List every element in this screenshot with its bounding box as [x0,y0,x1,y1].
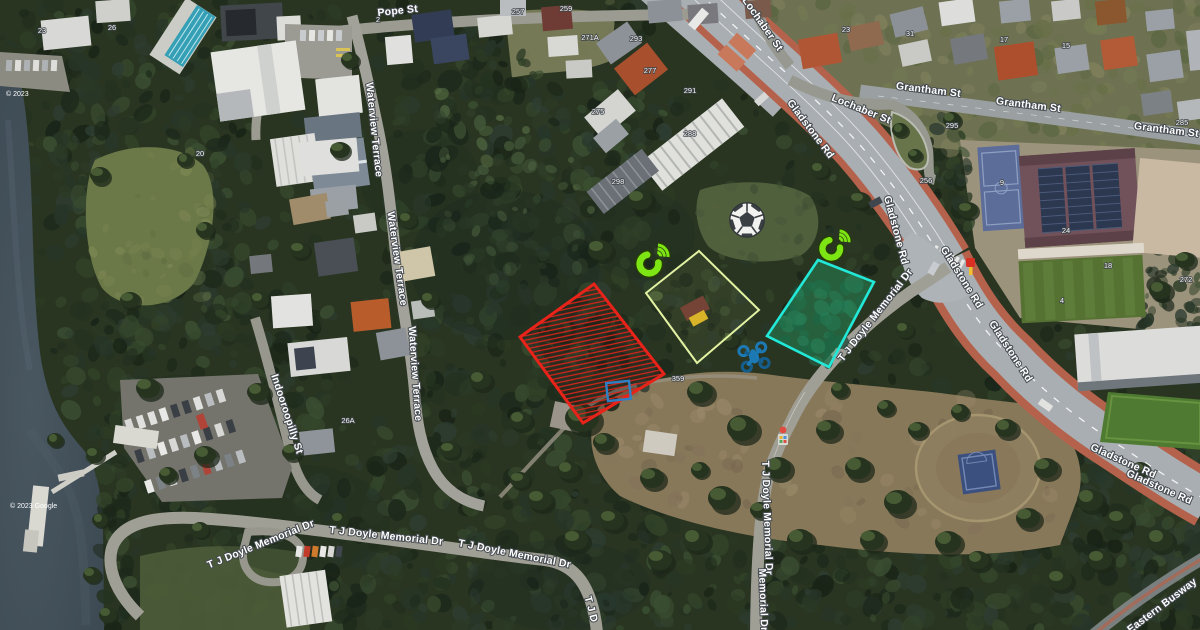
svg-text:17: 17 [1000,35,1008,44]
svg-text:© 2023: © 2023 [6,90,29,98]
svg-text:26A: 26A [341,416,354,425]
svg-text:256: 256 [920,176,933,185]
svg-text:259: 259 [560,4,573,13]
svg-text:291: 291 [684,86,697,95]
svg-text:23: 23 [842,25,850,34]
svg-text:26: 26 [108,23,116,32]
svg-text:271A: 271A [581,33,599,42]
svg-text:© 2023 Google: © 2023 Google [10,502,57,510]
svg-text:288: 288 [684,129,697,138]
svg-text:20: 20 [196,149,204,158]
svg-text:15: 15 [1062,41,1070,50]
svg-text:257: 257 [512,7,525,16]
svg-text:272: 272 [1180,275,1193,284]
svg-text:23: 23 [38,26,46,35]
svg-text:277: 277 [644,66,657,75]
svg-text:18: 18 [1104,261,1112,270]
svg-text:285: 285 [1176,118,1189,127]
svg-text:Memorial Dr: Memorial Dr [756,568,770,630]
svg-text:24: 24 [1062,226,1070,235]
svg-text:275: 275 [592,107,605,116]
svg-text:4: 4 [1060,296,1064,305]
svg-text:359: 359 [672,374,685,383]
svg-text:293: 293 [630,34,643,43]
svg-text:298: 298 [612,177,625,186]
svg-text:31: 31 [906,29,914,38]
svg-text:2: 2 [376,15,380,24]
svg-text:9: 9 [1000,178,1004,187]
svg-text:295: 295 [946,121,959,130]
